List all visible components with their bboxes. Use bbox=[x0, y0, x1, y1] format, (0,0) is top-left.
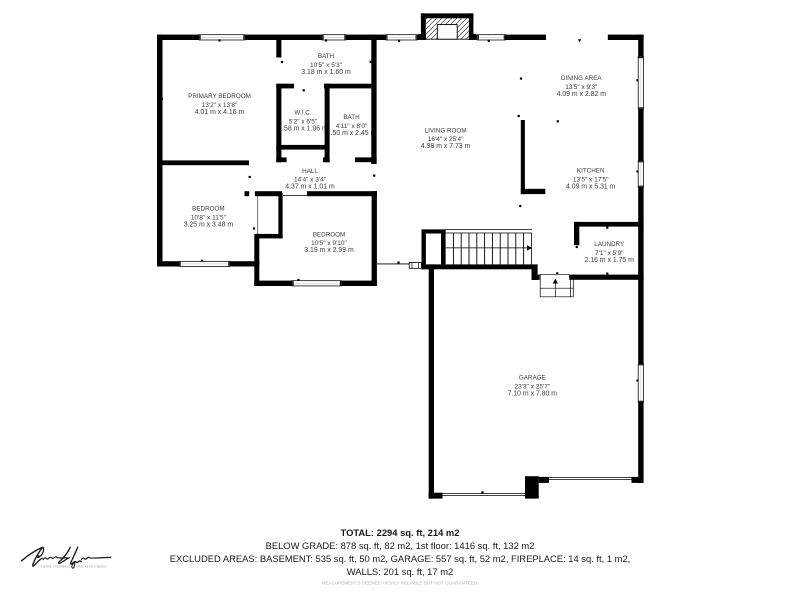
svg-text:7.10 m x 7.80 m: 7.10 m x 7.80 m bbox=[508, 390, 558, 397]
svg-text:4.37 m x 1.01 m: 4.37 m x 1.01 m bbox=[285, 184, 335, 191]
svg-text:23'3" x 25'7": 23'3" x 25'7" bbox=[514, 383, 550, 390]
svg-text:14'4" x 3'4": 14'4" x 3'4" bbox=[294, 177, 327, 184]
svg-text:3.18 m x 1.60 m: 3.18 m x 1.60 m bbox=[301, 69, 351, 76]
svg-text:13'5" x 17'5": 13'5" x 17'5" bbox=[573, 176, 609, 183]
svg-text:1.58 m x 1.96 m: 1.58 m x 1.96 m bbox=[278, 126, 328, 133]
svg-text:EXCLUDED AREAS: BASEMENT: 535: EXCLUDED AREAS: BASEMENT: 535 sq. ft, 50… bbox=[170, 553, 631, 564]
svg-text:BELOW GRADE: 878 sq. ft, 82 m2: BELOW GRADE: 878 sq. ft, 82 m2, 1st floo… bbox=[266, 540, 535, 551]
svg-text:DINING AREA: DINING AREA bbox=[561, 75, 602, 82]
svg-text:PIERRE STEPHENSON ▪ REAL E: PIERRE STEPHENSON ▪ REAL ESTATE MEDIA bbox=[41, 565, 107, 568]
svg-text:10'5" x 9'10": 10'5" x 9'10" bbox=[311, 240, 347, 247]
svg-text:4.09 m x 5.31 m: 4.09 m x 5.31 m bbox=[566, 183, 616, 190]
svg-text:HALL: HALL bbox=[302, 168, 318, 175]
svg-text:4.98 m x 7.73 m: 4.98 m x 7.73 m bbox=[421, 143, 471, 150]
svg-text:MEASUREMENTS DEEMED HIGHLY REL: MEASUREMENTS DEEMED HIGHLY RELIABLE BUT … bbox=[322, 580, 479, 585]
svg-text:4'11" x 8'0": 4'11" x 8'0" bbox=[336, 123, 368, 130]
svg-text:LAUNDRY: LAUNDRY bbox=[594, 241, 625, 248]
svg-text:GARAGE: GARAGE bbox=[519, 375, 546, 382]
svg-text:TOTAL: 2294 sq. ft, 214 m2: TOTAL: 2294 sq. ft, 214 m2 bbox=[341, 527, 460, 538]
svg-text:13'5" x 9'3": 13'5" x 9'3" bbox=[565, 84, 598, 91]
svg-text:PRIMARY BEDROOM: PRIMARY BEDROOM bbox=[188, 93, 251, 100]
svg-text:5'2" x 6'5": 5'2" x 6'5" bbox=[289, 118, 318, 125]
svg-text:BATH: BATH bbox=[343, 114, 360, 121]
svg-text:3.25 m x 3.48 m: 3.25 m x 3.48 m bbox=[184, 221, 234, 228]
svg-text:W.I.C.: W.I.C. bbox=[294, 110, 311, 117]
svg-text:BEDROOM: BEDROOM bbox=[192, 206, 225, 213]
svg-text:4.01 m x 4.16 m: 4.01 m x 4.16 m bbox=[195, 109, 245, 116]
svg-text:WALLS: 201 sq. ft, 17 m2: WALLS: 201 sq. ft, 17 m2 bbox=[347, 566, 453, 577]
svg-text:LIVING ROOM: LIVING ROOM bbox=[425, 127, 467, 134]
svg-text:7'1" x 5'9": 7'1" x 5'9" bbox=[595, 250, 624, 257]
svg-text:KITCHEN: KITCHEN bbox=[577, 168, 605, 175]
svg-text:10'8" x 11'5": 10'8" x 11'5" bbox=[191, 214, 227, 221]
svg-text:BEDROOM: BEDROOM bbox=[313, 231, 346, 238]
svg-text:4.09 m x 2.82 m: 4.09 m x 2.82 m bbox=[557, 91, 607, 98]
svg-text:BATH: BATH bbox=[318, 53, 335, 60]
svg-text:3.19 m x 2.99 m: 3.19 m x 2.99 m bbox=[304, 247, 354, 254]
svg-text:10'5" x 5'3": 10'5" x 5'3" bbox=[310, 62, 343, 69]
svg-text:2.16 m x 1.75 m: 2.16 m x 1.75 m bbox=[584, 257, 634, 264]
svg-text:16'4" x 25'4": 16'4" x 25'4" bbox=[428, 136, 464, 143]
svg-text:13'2" x 13'8": 13'2" x 13'8" bbox=[202, 102, 238, 109]
svg-text:1.50 m x 2.45 m: 1.50 m x 2.45 m bbox=[327, 130, 377, 137]
